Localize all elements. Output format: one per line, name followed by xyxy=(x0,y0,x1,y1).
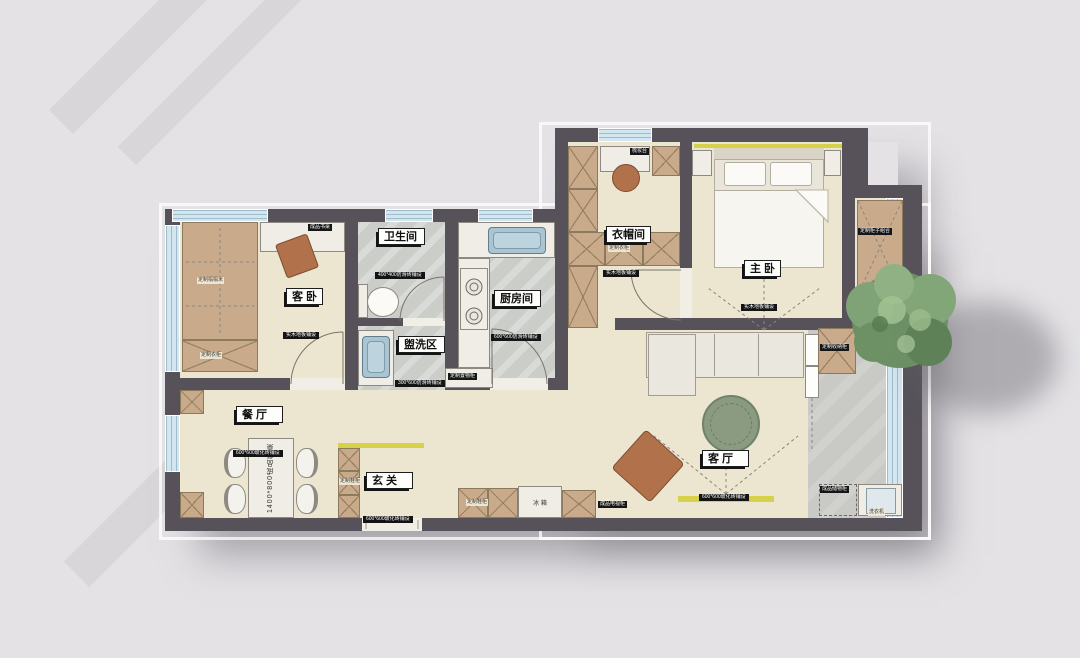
guest-door-opening xyxy=(290,378,345,390)
wash-basin xyxy=(362,336,390,378)
room-name: 卫生间 xyxy=(378,228,425,245)
kitchen-sink xyxy=(488,227,546,254)
room-label-kitchen: 厨房间 600*600防滑砖铺设 xyxy=(494,290,541,343)
window-guest-top xyxy=(172,209,268,222)
room-name: 主 卧 xyxy=(744,260,781,277)
tree xyxy=(836,258,964,384)
wardrobe-cell xyxy=(568,146,598,189)
wall-ne-step xyxy=(855,142,868,190)
room-label-master-bedroom: 主 卧 实木地板铺设 xyxy=(744,260,781,313)
room-label-guest-bedroom: 客 卧 实木地板铺设 xyxy=(286,288,323,341)
stove xyxy=(460,268,488,330)
nightstand-right xyxy=(824,150,841,176)
toilet-bowl xyxy=(367,287,399,317)
duvet xyxy=(714,190,824,268)
room-name: 玄 关 xyxy=(366,472,413,489)
shoe-cell xyxy=(338,495,360,518)
desk-label: 成品书桌 xyxy=(308,224,332,231)
tv-cabinet-label: 成品电视柜 xyxy=(598,501,627,508)
tatami-label: 定制榻榻米 xyxy=(197,277,224,284)
dining-chair xyxy=(224,484,246,514)
wall-bottom-left xyxy=(165,518,362,531)
wall-bottom-right xyxy=(422,518,922,531)
headboard xyxy=(714,148,824,160)
room-floor-spec: 300*600防滑砖铺设 xyxy=(395,380,445,387)
dining-chair-brown xyxy=(296,448,318,478)
room-label-living-room: 客 厅 600*600玻化砖铺设 xyxy=(702,450,749,503)
sofa-seam xyxy=(714,334,715,376)
wardrobe-cell xyxy=(568,189,598,232)
floor-plan-canvas: 定制榻榻米 定制衣柜 成品书桌 定制置物柜 定制衣柜 梳妆台 定制柜子组合 xyxy=(0,0,1080,658)
window-dining xyxy=(165,415,180,472)
room-name: 客 卧 xyxy=(286,288,323,305)
room-label-dining-room: 餐 厅 600*600玻化砖铺设 xyxy=(236,406,283,459)
sofa-seam xyxy=(758,334,759,376)
nightstand-left xyxy=(692,150,712,176)
dining-chair xyxy=(296,484,318,514)
window-bathroom xyxy=(385,209,433,222)
sliding-door-panel xyxy=(805,366,819,398)
side-cabinet xyxy=(180,492,204,518)
bath-door-opening xyxy=(403,318,445,326)
room-label-entry: 玄 关 600*600玻化砖铺设 xyxy=(366,472,413,525)
room-floor-spec: 600*600防滑砖铺设 xyxy=(491,334,541,341)
wall-guest-bath xyxy=(345,222,358,390)
room-name: 厨房间 xyxy=(494,290,541,307)
shoe-cell xyxy=(488,488,518,518)
room-floor-spec: 400*400防滑砖铺设 xyxy=(375,272,425,279)
storage-cabinet-label: 定制置物柜 xyxy=(448,373,477,380)
room-floor-spec: 实木地板铺设 xyxy=(283,332,319,339)
balcony-storage-label: 成品储物柜 xyxy=(820,486,849,493)
wall-kitchen-right xyxy=(555,128,568,390)
room-name: 盥洗区 xyxy=(398,336,445,353)
wardrobe-cell xyxy=(568,266,598,328)
wall-guest-bottom xyxy=(180,378,290,390)
basin-inner xyxy=(493,232,541,249)
pillow xyxy=(770,162,812,186)
room-name: 衣帽间 xyxy=(606,226,651,243)
wall-cloak-master xyxy=(680,142,692,268)
wardrobe-cell xyxy=(568,232,605,266)
room-label-cloakroom: 衣帽间 实木地板铺设 xyxy=(606,226,651,279)
shoe-cell xyxy=(338,448,360,471)
pillow xyxy=(724,162,766,186)
shoe-cabinet-label: 定制鞋柜 xyxy=(466,499,488,506)
window-guest-left xyxy=(165,225,180,372)
hall-cabinet xyxy=(562,490,596,518)
wall-washing-kitchen xyxy=(445,222,458,390)
fridge: 冰 箱 xyxy=(518,486,562,518)
shoe-column-label: 定制鞋柜 xyxy=(339,478,361,485)
sliding-door-panel xyxy=(805,334,819,366)
side-cabinet xyxy=(180,390,204,414)
master-door-opening xyxy=(680,268,692,318)
room-name: 客 厅 xyxy=(702,450,749,467)
window-kitchen xyxy=(478,209,533,222)
tatami-wardrobe-label: 定制衣柜 xyxy=(200,352,222,359)
room-name: 餐 厅 xyxy=(236,406,283,423)
cloak-cabinet xyxy=(652,146,680,176)
room-floor-spec: 实木地板铺设 xyxy=(741,304,777,311)
dresser-stool xyxy=(612,164,640,192)
fridge-label: 冰 箱 xyxy=(533,498,547,507)
bay-cabinet-label: 定制柜子组合 xyxy=(858,228,892,235)
window-cloakroom xyxy=(598,128,652,142)
rug-stitch xyxy=(710,403,752,445)
corridor-wardrobe xyxy=(568,266,598,328)
room-floor-spec: 600*600玻化砖铺设 xyxy=(699,494,749,501)
dresser-label: 梳妆台 xyxy=(630,148,649,155)
room-floor-spec: 600*600玻化砖铺设 xyxy=(363,516,413,523)
room-floor-spec: 600*600玻化砖铺设 xyxy=(233,450,283,457)
wall-kitchen-bottom-r xyxy=(548,378,568,390)
kitchen-door-opening xyxy=(490,378,548,390)
round-rug xyxy=(702,395,760,453)
room-floor-spec: 实木地板铺设 xyxy=(603,270,639,277)
room-label-washing-area: 盥洗区 300*600防滑砖铺设 xyxy=(398,336,445,389)
basin-inner xyxy=(367,341,385,373)
cloak-wardrobe-column xyxy=(568,146,598,232)
sofa-chaise xyxy=(648,334,696,396)
room-label-bathroom: 卫生间 400*400防滑砖铺设 xyxy=(378,228,425,281)
washer-label: 洗衣机 xyxy=(868,509,885,516)
wall-bath-washing xyxy=(358,318,403,326)
